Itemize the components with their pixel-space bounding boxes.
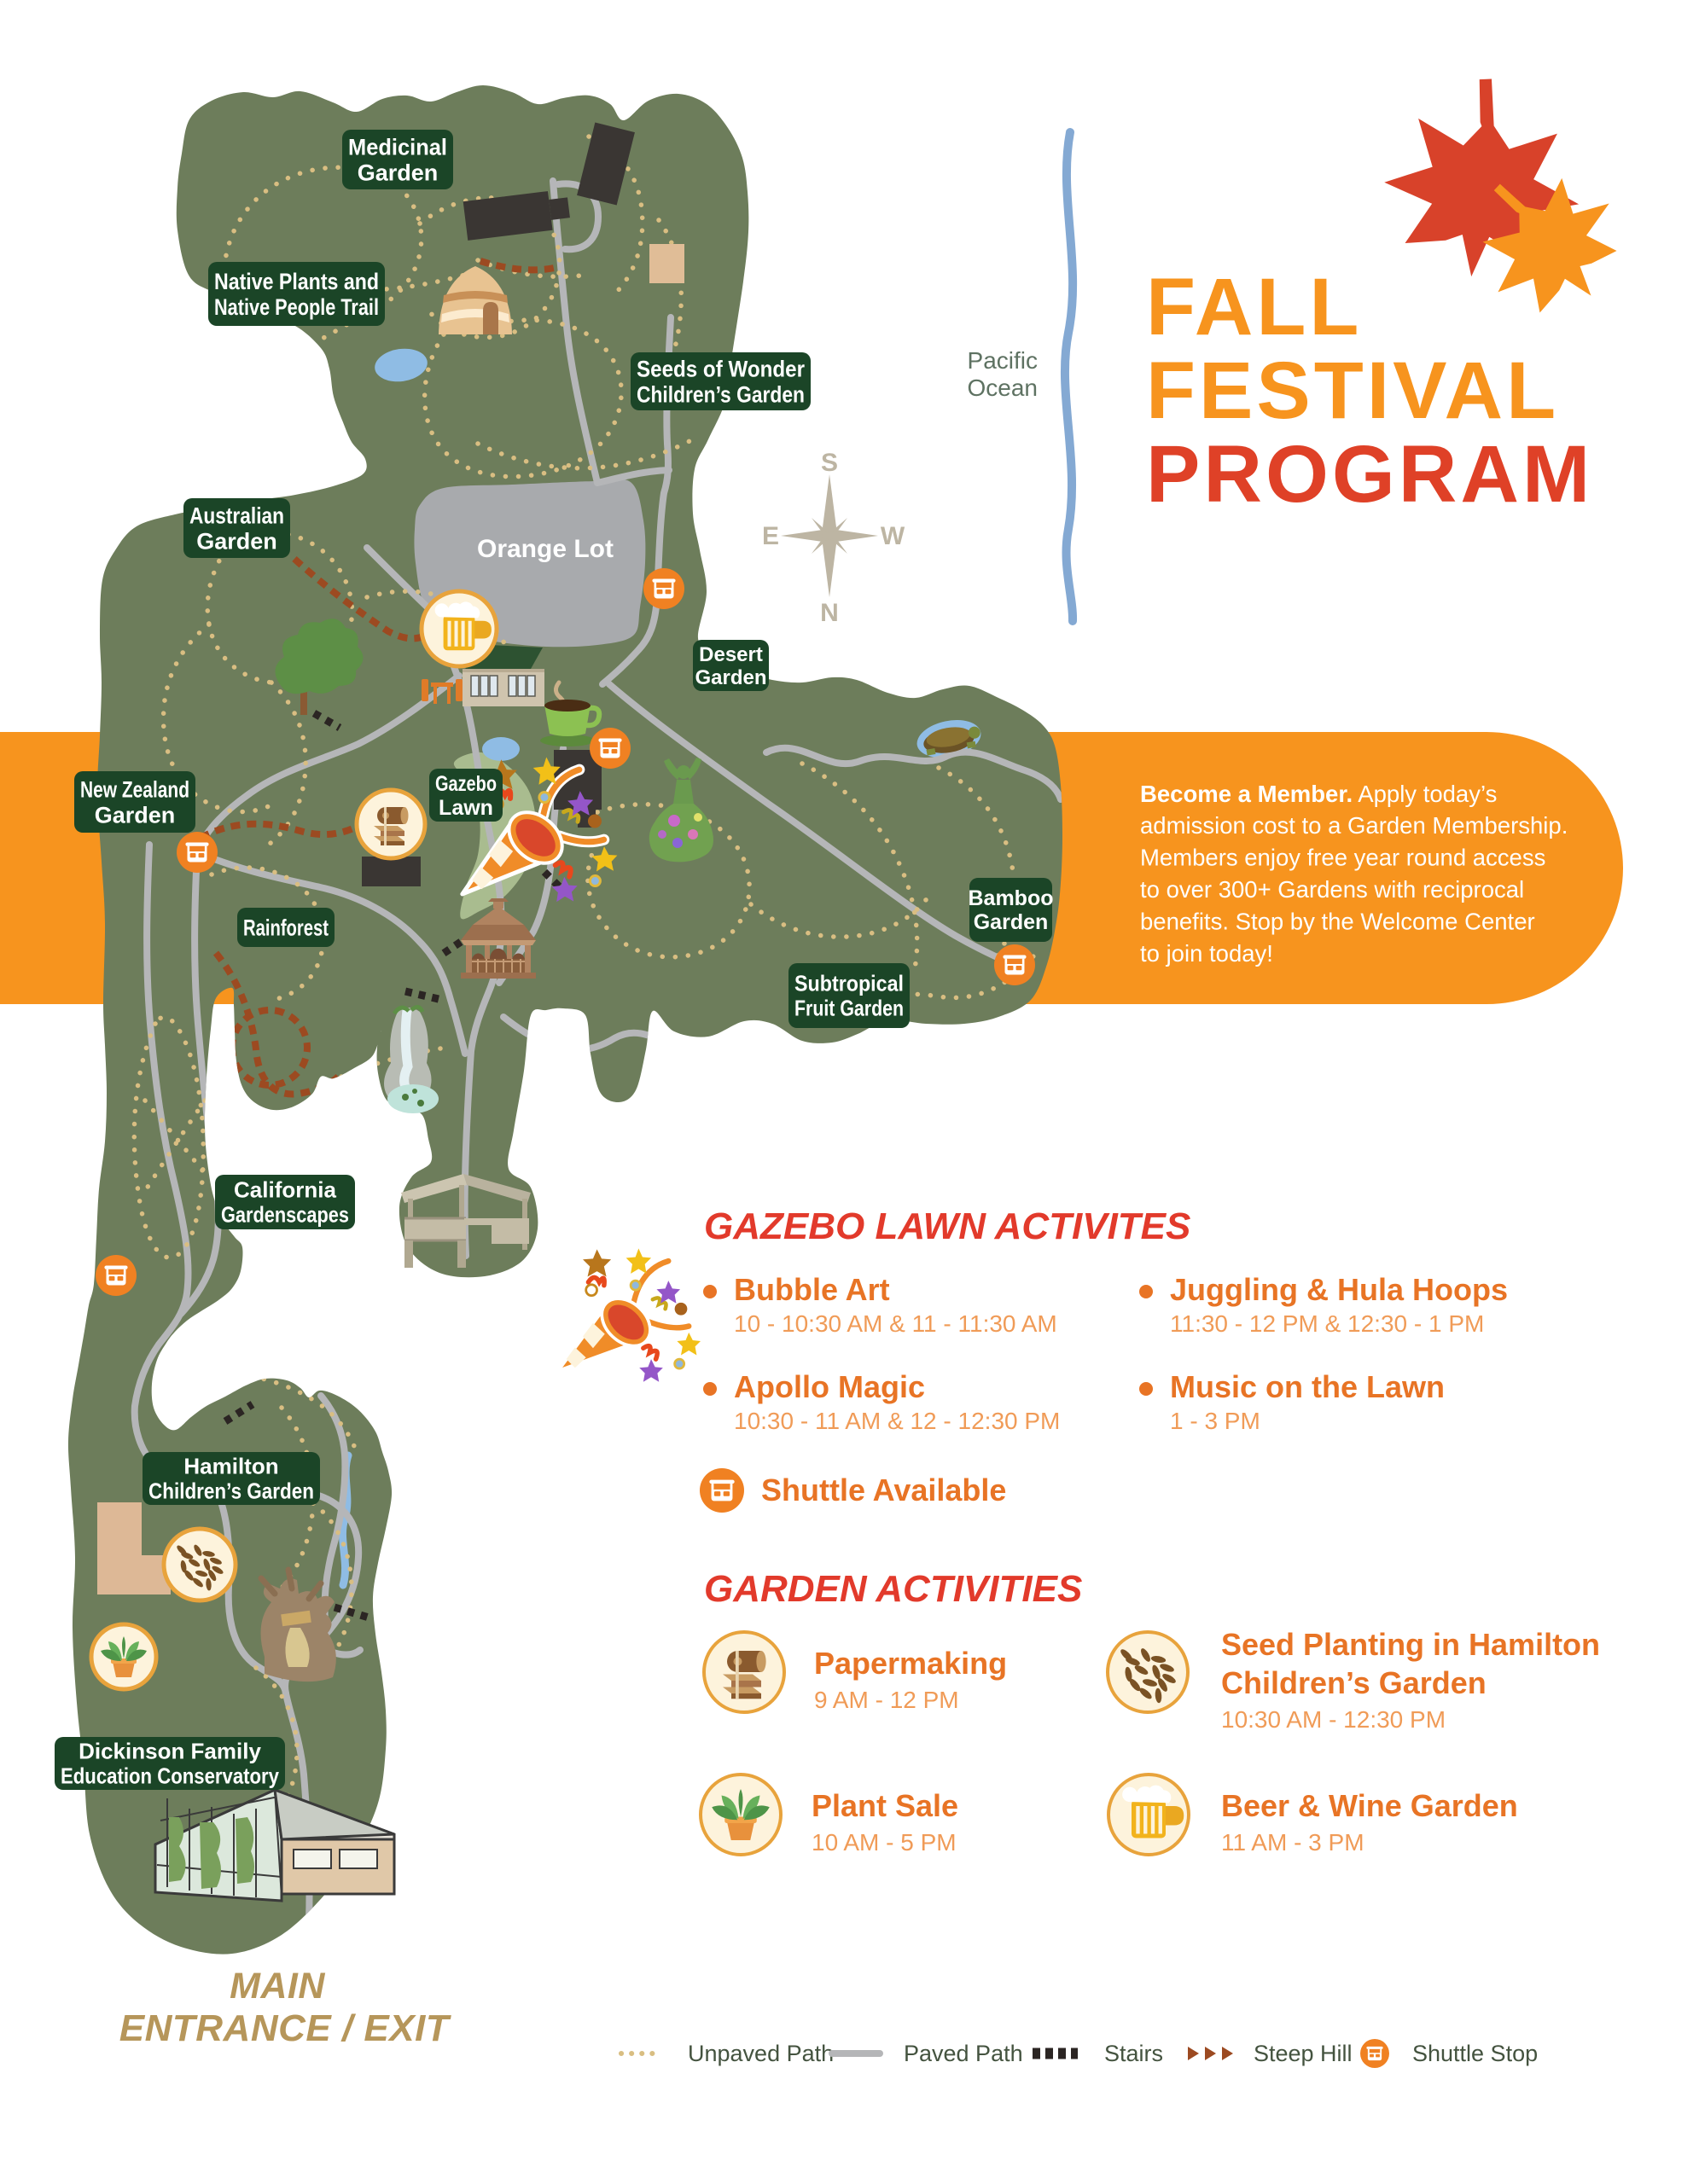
svg-text:Native People Trail: Native People Trail — [214, 294, 379, 320]
svg-text:Children’s Garden: Children’s Garden — [148, 1478, 314, 1504]
svg-text:10 AM - 5 PM: 10 AM - 5 PM — [812, 1829, 957, 1856]
svg-text:Australian: Australian — [189, 503, 284, 529]
svg-text:Seed Planting in Hamilton: Seed Planting in Hamilton — [1221, 1627, 1600, 1662]
svg-text:Unpaved Path: Unpaved Path — [688, 2041, 834, 2066]
svg-text:S: S — [821, 449, 838, 477]
svg-text:GARDEN ACTIVITIES: GARDEN ACTIVITIES — [704, 1568, 1082, 1610]
svg-text:Stairs: Stairs — [1104, 2041, 1163, 2066]
svg-text:Garden: Garden — [196, 529, 277, 555]
svg-text:MAIN: MAIN — [230, 1966, 325, 2007]
svg-text:benefits. Stop by the Welcome: benefits. Stop by the Welcome Center — [1140, 909, 1535, 935]
svg-text:Children’s Garden: Children’s Garden — [637, 381, 805, 407]
svg-text:Medicinal: Medicinal — [348, 134, 447, 160]
svg-text:Seeds of Wonder: Seeds of Wonder — [637, 356, 805, 381]
svg-text:Shuttle Stop: Shuttle Stop — [1412, 2041, 1538, 2066]
svg-text:Education Conservatory: Education Conservatory — [61, 1763, 279, 1789]
svg-text:Apollo Magic: Apollo Magic — [734, 1369, 925, 1404]
svg-text:Bamboo: Bamboo — [969, 886, 1054, 910]
svg-text:admission cost to a Garden Mem: admission cost to a Garden Membership. — [1140, 812, 1568, 839]
svg-text:Juggling & Hula Hoops: Juggling & Hula Hoops — [1170, 1272, 1508, 1307]
svg-text:Beer & Wine Garden: Beer & Wine Garden — [1221, 1788, 1518, 1823]
svg-text:10:30 - 11 AM & 12 - 12:30 PM: 10:30 - 11 AM & 12 - 12:30 PM — [734, 1408, 1060, 1434]
svg-text:9 AM - 12 PM: 9 AM - 12 PM — [814, 1687, 959, 1713]
svg-text:Dickinson Family: Dickinson Family — [79, 1739, 261, 1764]
svg-text:Gazebo: Gazebo — [435, 772, 497, 796]
svg-text:Garden: Garden — [974, 910, 1049, 934]
svg-text:Paved Path: Paved Path — [904, 2041, 1023, 2066]
svg-text:FESTIVAL: FESTIVAL — [1146, 346, 1559, 436]
svg-text:Plant Sale: Plant Sale — [812, 1788, 958, 1823]
svg-text:GAZEBO LAWN ACTIVITES: GAZEBO LAWN ACTIVITES — [704, 1205, 1190, 1247]
svg-text:Desert: Desert — [699, 643, 763, 666]
svg-text:Become a Member. Apply today’s: Become a Member. Apply today’s — [1140, 781, 1497, 807]
svg-text:Orange Lot: Orange Lot — [477, 535, 614, 563]
svg-text:to join today!: to join today! — [1140, 940, 1273, 967]
svg-text:10 - 10:30 AM & 11 - 11:30 AM: 10 - 10:30 AM & 11 - 11:30 AM — [734, 1310, 1057, 1337]
svg-text:Gardenscapes: Gardenscapes — [221, 1202, 349, 1228]
svg-text:Music on the Lawn: Music on the Lawn — [1170, 1369, 1445, 1404]
svg-text:Children’s Garden: Children’s Garden — [1221, 1665, 1487, 1700]
svg-text:FALL: FALL — [1146, 262, 1362, 352]
svg-text:to over 300+ Gardens with reci: to over 300+ Gardens with reciprocal — [1140, 876, 1524, 903]
svg-text:W: W — [881, 522, 905, 550]
svg-text:10:30 AM - 12:30 PM: 10:30 AM - 12:30 PM — [1221, 1706, 1446, 1733]
svg-text:11 AM - 3 PM: 11 AM - 3 PM — [1221, 1829, 1364, 1856]
svg-text:Garden: Garden — [95, 803, 176, 828]
svg-text:California: California — [234, 1177, 336, 1203]
svg-text:ENTRANCE / EXIT: ENTRANCE / EXIT — [119, 2007, 451, 2049]
svg-text:PROGRAM: PROGRAM — [1146, 429, 1593, 520]
svg-text:Pacific: Pacific — [968, 347, 1038, 374]
svg-text:Fruit Garden: Fruit Garden — [794, 996, 904, 1021]
svg-text:E: E — [762, 522, 779, 550]
svg-text:Lawn: Lawn — [439, 796, 493, 820]
svg-text:N: N — [820, 599, 839, 627]
svg-text:Bubble Art: Bubble Art — [734, 1272, 890, 1307]
svg-text:Garden: Garden — [358, 160, 439, 185]
svg-text:Papermaking: Papermaking — [814, 1646, 1007, 1681]
svg-text:Members enjoy free year round: Members enjoy free year round access — [1140, 845, 1545, 871]
svg-text:Ocean: Ocean — [968, 375, 1039, 401]
svg-text:Native Plants and: Native Plants and — [214, 269, 379, 294]
svg-text:11:30 - 12 PM & 12:30 - 1 PM: 11:30 - 12 PM & 12:30 - 1 PM — [1170, 1310, 1484, 1337]
svg-text:Shuttle Available: Shuttle Available — [761, 1472, 1006, 1507]
svg-text:Garden: Garden — [695, 666, 766, 689]
svg-text:Steep Hill: Steep Hill — [1254, 2041, 1353, 2066]
svg-text:1 - 3 PM: 1 - 3 PM — [1170, 1408, 1260, 1434]
svg-text:New Zealand: New Zealand — [80, 777, 189, 803]
svg-text:Subtropical: Subtropical — [794, 971, 904, 996]
svg-text:Hamilton: Hamilton — [183, 1454, 278, 1479]
svg-text:Rainforest: Rainforest — [243, 915, 329, 941]
